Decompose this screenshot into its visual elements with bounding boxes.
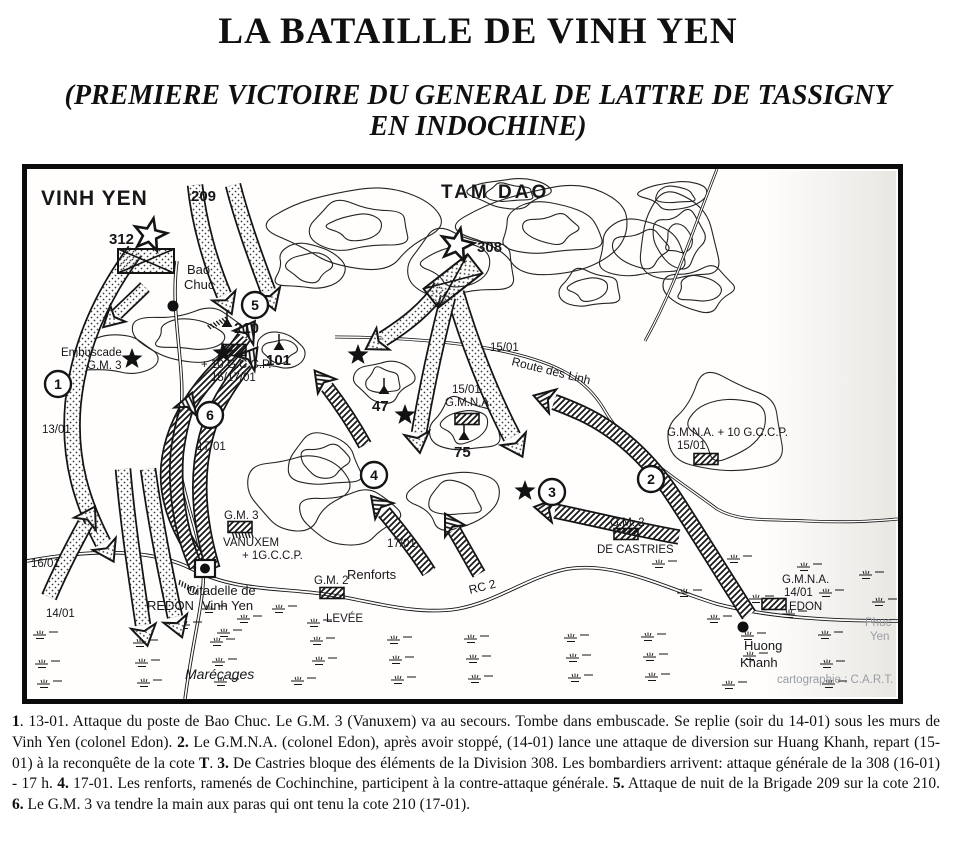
label-route-des-linh: Route des Linh: [510, 354, 592, 387]
label-14-01-right: 14/01: [784, 587, 813, 599]
unit-symbol: [762, 599, 786, 610]
phase-marker-6: 6: [197, 402, 223, 428]
label-redon: REDON: [147, 598, 194, 613]
label-209: 209: [191, 188, 216, 205]
label-edon: EDON: [789, 601, 822, 613]
summit-icon: [459, 424, 470, 440]
label-date-14-01: 14/01: [46, 608, 75, 620]
svg-text:1: 1: [54, 376, 62, 392]
label-plus-1-gccp: + 1G.C.C.P.: [242, 550, 303, 562]
label-renforts: Renforts: [347, 567, 397, 582]
summit-icon: [379, 378, 390, 394]
label-15-17-01: 15/17/01: [211, 372, 256, 384]
label-15-01-gmna: 15/01: [452, 384, 481, 396]
label-marecages: Marécages: [185, 666, 254, 682]
map-frame: 123456VINH YEN209TAM DAO312308BaoChucEmb…: [22, 164, 903, 704]
map-drawing: 123456VINH YEN209TAM DAO312308BaoChucEmb…: [27, 169, 898, 699]
unit-symbol: [614, 529, 638, 540]
label-yen: Yen: [870, 631, 889, 643]
battle-star-icon: [515, 480, 536, 500]
map-caption: 1. 13-01. Attaque du poste de Bao Chuc. …: [12, 712, 940, 816]
label-chuc: Chuc: [184, 277, 215, 292]
label-gmna-center: G.M.N.A.: [445, 397, 492, 409]
division-symbol: [118, 249, 174, 273]
label-tam-dao-region: TAM DAO: [441, 182, 549, 203]
label-huong: Huong: [744, 638, 782, 653]
label-gmna-right: G.M.N.A.: [782, 574, 829, 586]
label-gm2-castries: G.M. 2: [610, 517, 645, 529]
label-17-01-renforts: 17/01: [387, 538, 416, 550]
phase-marker-3: 3: [539, 479, 565, 505]
battle-star-icon: [348, 344, 369, 364]
label-de-castries: DE CASTRIES: [597, 544, 674, 556]
label-308: 308: [477, 239, 502, 256]
label-embuscade-gm3: G.M. 3: [87, 360, 122, 372]
label-cote-75: 75: [454, 444, 471, 461]
town-dot: [738, 622, 749, 633]
label-cote-47: 47: [372, 398, 389, 415]
unit-symbol: [694, 454, 718, 465]
phase-marker-4: 4: [361, 462, 387, 488]
phase-markers: 123456: [45, 292, 664, 505]
unit-symbol: [455, 414, 479, 425]
map-credit: cartographie : C.A.R.T.: [777, 674, 893, 686]
label-plus-10-gccp: + 10 G.C.C.P.: [201, 359, 271, 371]
svg-text:3: 3: [548, 484, 556, 500]
label-17-01-gm3: 17/01: [197, 441, 226, 453]
label-15-01-right: 15/01: [677, 440, 706, 452]
label-vanuxem: VANUXEM: [223, 537, 279, 549]
label-date-16-01: 16/01: [31, 558, 60, 570]
label-312: 312: [109, 231, 134, 248]
citadel-dot: [200, 564, 210, 574]
page-title: LA BATAILLE DE VINH YEN: [0, 10, 956, 53]
phase-marker-1: 1: [45, 371, 71, 397]
label-date-13-01: 13/01: [42, 424, 71, 436]
page-subtitle: (PREMIERE VICTOIRE DU GENERAL DE LATTRE …: [60, 80, 896, 142]
label-phuc: Phuc: [865, 617, 891, 629]
town-dot: [168, 301, 179, 312]
label-rc2: RC 2: [467, 577, 497, 597]
phase-marker-2: 2: [638, 466, 664, 492]
unit-symbol: [228, 522, 252, 533]
svg-text:5: 5: [251, 297, 259, 313]
label-citadelle-de: Citadelle de: [187, 583, 256, 598]
label-vinh-yen-town: Vinh Yen: [202, 598, 253, 613]
label-vinh-yen-region: VINH YEN: [41, 187, 148, 210]
phase-marker-5: 5: [242, 292, 268, 318]
battle-star-icon: [122, 348, 143, 368]
battle-star-icon: [395, 404, 416, 424]
unit-symbol: [320, 588, 344, 599]
label-embuscade: Embuscade: [61, 347, 122, 359]
label-khanh: Khanh: [740, 655, 778, 670]
label-gmna-plus-10-gccp: G.M.N.A. + 10 G.C.C.P.: [667, 427, 788, 439]
unit-symbols: [222, 345, 786, 610]
label-levee: LEVÉE: [326, 612, 363, 625]
label-gm2-levee: G.M. 2: [314, 575, 349, 587]
label-15-01-route: 15/01: [490, 342, 519, 354]
label-gm3-vanuxem-unit: G.M. 3: [224, 510, 259, 522]
battle-map: 123456VINH YEN209TAM DAO312308BaoChucEmb…: [27, 169, 898, 699]
label-bao: Bao: [187, 262, 210, 277]
label-cote-210: 210: [234, 320, 259, 337]
svg-text:4: 4: [370, 467, 378, 483]
division-star-icon: [131, 215, 169, 252]
svg-text:6: 6: [206, 407, 214, 423]
svg-text:2: 2: [647, 471, 655, 487]
